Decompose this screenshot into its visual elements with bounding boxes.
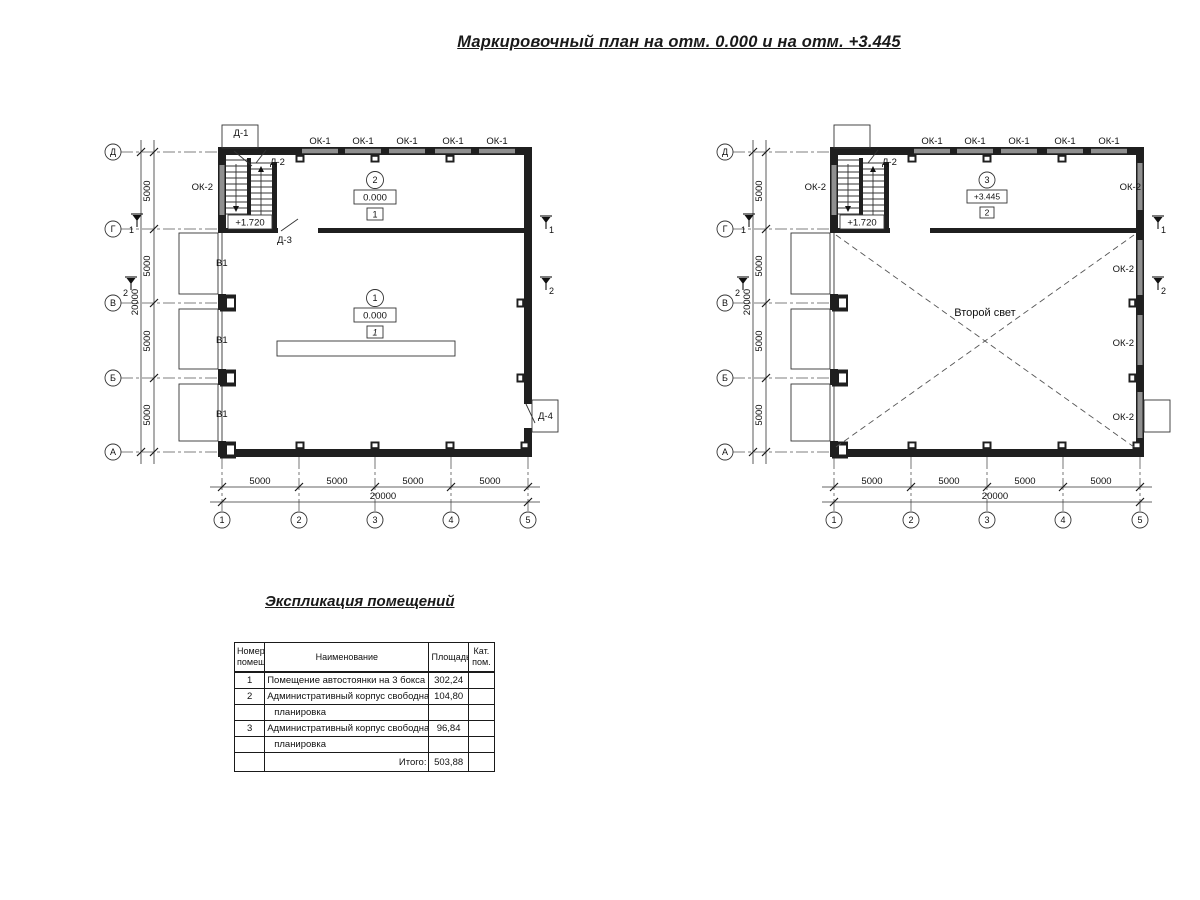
door-label-d3: Д-3: [277, 235, 292, 246]
dim-bay: 5000: [1090, 476, 1111, 487]
window-label-ok2: ОК-2: [805, 182, 826, 193]
dim-bay: 5000: [142, 180, 153, 201]
col-header-category: Кат. пом.: [468, 643, 494, 673]
axis-row-label: Б: [110, 373, 116, 383]
row-axis-bubbles: Д Г В Б А: [717, 144, 733, 460]
cell-number: 2: [235, 689, 265, 705]
axis-row-label: В: [110, 298, 116, 308]
staircase: +1.720: [226, 158, 277, 229]
vertical-dimensions: 5000 5000 5000 5000 20000: [130, 140, 158, 464]
axis-row-label: Д: [110, 147, 116, 157]
cell-total-area: 503,88: [429, 753, 468, 772]
section-mark-2: 2: [1161, 286, 1166, 296]
cell-name: Административный корпус свободная: [265, 689, 429, 705]
room-marker-1: 1 0.000 1: [354, 290, 396, 339]
dim-bay: 5000: [754, 404, 765, 425]
axis-row-label: Г: [111, 224, 116, 234]
cell-number: 3: [235, 721, 265, 737]
window-label-ok2: ОК-2: [1113, 338, 1134, 349]
room-level: 0.000: [363, 311, 387, 322]
dim-bay: 5000: [861, 476, 882, 487]
stair-landing-level: +1.720: [847, 218, 876, 229]
section-mark-2: 2: [549, 286, 554, 296]
cell-name: планировка: [265, 705, 429, 721]
plan-elevation-3445: 5000 5000 5000 5000 20000 Д Г В Б А: [717, 125, 1170, 528]
explication-table: Номер помещ. Наименование Площадь Кат. п…: [234, 642, 495, 772]
window-label-ok1: ОК-1: [442, 136, 463, 147]
dim-total: 20000: [130, 289, 141, 315]
axis-col-label: 5: [525, 515, 530, 525]
room-number: 3: [984, 175, 989, 185]
axis-row-label: Б: [722, 373, 728, 383]
axis-row-label: Г: [723, 224, 728, 234]
floor-trench: [277, 341, 455, 356]
floor-plans-drawing: 5000 5000 5000 5000 20000 Д Г В Б А: [0, 0, 1200, 900]
cell-area: 302,24: [429, 672, 468, 689]
room-level: +3.445: [974, 192, 1001, 202]
cell-number: [235, 705, 265, 721]
gate-openings: [791, 233, 834, 441]
gate-label-v1: В1: [216, 409, 228, 420]
cell-category: [468, 705, 494, 721]
window-label-ok1: ОК-1: [921, 136, 942, 147]
axis-grid-lines: [733, 152, 1140, 512]
section-marks: 1 2 1 2: [735, 214, 1166, 298]
cell-name: Административный корпус свободная: [265, 721, 429, 737]
plan-elevation-0000: 5000 5000 5000 5000 20000 Д Г В Б А: [105, 125, 558, 528]
dim-bay: 5000: [1014, 476, 1035, 487]
vertical-dimensions: 5000 5000 5000 5000 20000: [742, 140, 770, 464]
door-label-d1: Д-1: [234, 128, 249, 139]
window-label-ok2: ОК-2: [1120, 182, 1141, 193]
cell-category: [468, 672, 494, 689]
room-marker-2: 2 0.000 1: [354, 172, 396, 221]
dim-bay: 5000: [754, 255, 765, 276]
window-label-ok1: ОК-1: [1008, 136, 1029, 147]
cell-category: [468, 721, 494, 737]
cell-total-label: Итого:: [265, 753, 429, 772]
axis-col-label: 2: [908, 515, 913, 525]
window-label-ok2: ОК-2: [1113, 412, 1134, 423]
dim-bay: 5000: [479, 476, 500, 487]
room-category: 1: [372, 210, 377, 220]
cell-name: планировка: [265, 737, 429, 753]
col-header-number: Номер помещ.: [235, 643, 265, 673]
axis-col-label: 3: [372, 515, 377, 525]
axis-col-label: 4: [1060, 515, 1065, 525]
dim-bay: 5000: [142, 255, 153, 276]
door-label-d2: Д-2: [882, 157, 897, 168]
section-mark-2: 2: [123, 288, 128, 298]
cell-name: Помещение автостоянки на 3 бокса: [265, 672, 429, 689]
staircase: +1.720: [838, 158, 889, 229]
gate-label-v1: В1: [216, 258, 228, 269]
dim-bay: 5000: [402, 476, 423, 487]
column-axis-bubbles: 1 2 3 4 5: [214, 512, 536, 528]
plan-labels: ОК-1 ОК-1 ОК-1 ОК-1 ОК-1 ОК-2 ОК-2 ОК-2 …: [805, 136, 1141, 423]
cell-category: [468, 737, 494, 753]
dim-bay: 5000: [142, 404, 153, 425]
window-label-ok1: ОК-1: [1098, 136, 1119, 147]
table-total-row: Итого: 503,88: [235, 753, 495, 772]
section-mark-1: 1: [129, 225, 134, 235]
second-light-label: Второй свет: [954, 307, 1015, 319]
col-header-area: Площадь: [429, 643, 468, 673]
window-label-ok2: ОК-2: [192, 182, 213, 193]
axis-row-label: А: [722, 447, 728, 457]
section-marks: 1 2 1 2: [123, 214, 554, 298]
table-row: 2 Административный корпус свободная 104,…: [235, 689, 495, 705]
axis-col-label: 3: [984, 515, 989, 525]
cell-category: [468, 753, 494, 772]
cell-area: 104,80: [429, 689, 468, 705]
room-category: 2: [985, 208, 990, 218]
dim-bay: 5000: [938, 476, 959, 487]
drawing-sheet: Маркировочный план на отм. 0.000 и на от…: [0, 0, 1200, 900]
window-label-ok1: ОК-1: [309, 136, 330, 147]
dim-bay: 5000: [754, 180, 765, 201]
room-number: 1: [372, 293, 377, 303]
section-mark-1: 1: [549, 225, 554, 235]
room-marker-3: 3 +3.445 2: [967, 172, 1007, 218]
col-header-name: Наименование: [265, 643, 429, 673]
dim-total: 20000: [370, 491, 396, 502]
axis-col-label: 1: [219, 515, 224, 525]
window-label-ok1: ОК-1: [486, 136, 507, 147]
axis-col-label: 5: [1137, 515, 1142, 525]
table-header-row: Номер помещ. Наименование Площадь Кат. п…: [235, 643, 495, 673]
row-axis-bubbles: Д Г В Б А: [105, 144, 121, 460]
cell-area: [429, 705, 468, 721]
axis-col-label: 1: [831, 515, 836, 525]
table-row: 1 Помещение автостоянки на 3 бокса 302,2…: [235, 672, 495, 689]
door-label-d2: Д-2: [270, 157, 285, 168]
axis-col-label: 2: [296, 515, 301, 525]
axis-grid-lines: [121, 152, 528, 512]
dim-bay: 5000: [754, 330, 765, 351]
window-label-ok1: ОК-1: [964, 136, 985, 147]
stair-landing-level: +1.720: [235, 218, 264, 229]
dim-total: 20000: [982, 491, 1008, 502]
dim-bay: 5000: [142, 330, 153, 351]
room-category: 1: [372, 328, 377, 338]
axis-row-label: В: [722, 298, 728, 308]
window-label-ok2: ОК-2: [1113, 264, 1134, 275]
gate-label-v1: В1: [216, 335, 228, 346]
dim-bay: 5000: [249, 476, 270, 487]
table-row: 3 Административный корпус свободная 96,8…: [235, 721, 495, 737]
cell-number: 1: [235, 672, 265, 689]
section-mark-1: 1: [741, 225, 746, 235]
window-label-ok1: ОК-1: [396, 136, 417, 147]
cell-number: [235, 737, 265, 753]
table-row: планировка: [235, 705, 495, 721]
axis-col-label: 4: [448, 515, 453, 525]
door-label-d4: Д-4: [538, 411, 553, 422]
section-mark-2: 2: [735, 288, 740, 298]
table-row: планировка: [235, 737, 495, 753]
dim-total: 20000: [742, 289, 753, 315]
cell-number: [235, 753, 265, 772]
room-level: 0.000: [363, 193, 387, 204]
dim-bay: 5000: [326, 476, 347, 487]
window-label-ok1: ОК-1: [1054, 136, 1075, 147]
window-label-ok1: ОК-1: [352, 136, 373, 147]
column-axis-bubbles: 1 2 3 4 5: [826, 512, 1148, 528]
explication-title: Экспликация помещений: [265, 593, 455, 610]
room-number: 2: [372, 175, 377, 185]
axis-row-label: А: [110, 447, 116, 457]
cell-area: 96,84: [429, 721, 468, 737]
section-mark-1: 1: [1161, 225, 1166, 235]
cell-category: [468, 689, 494, 705]
void-cross: Второй свет: [836, 235, 1134, 447]
cell-area: [429, 737, 468, 753]
axis-row-label: Д: [722, 147, 728, 157]
